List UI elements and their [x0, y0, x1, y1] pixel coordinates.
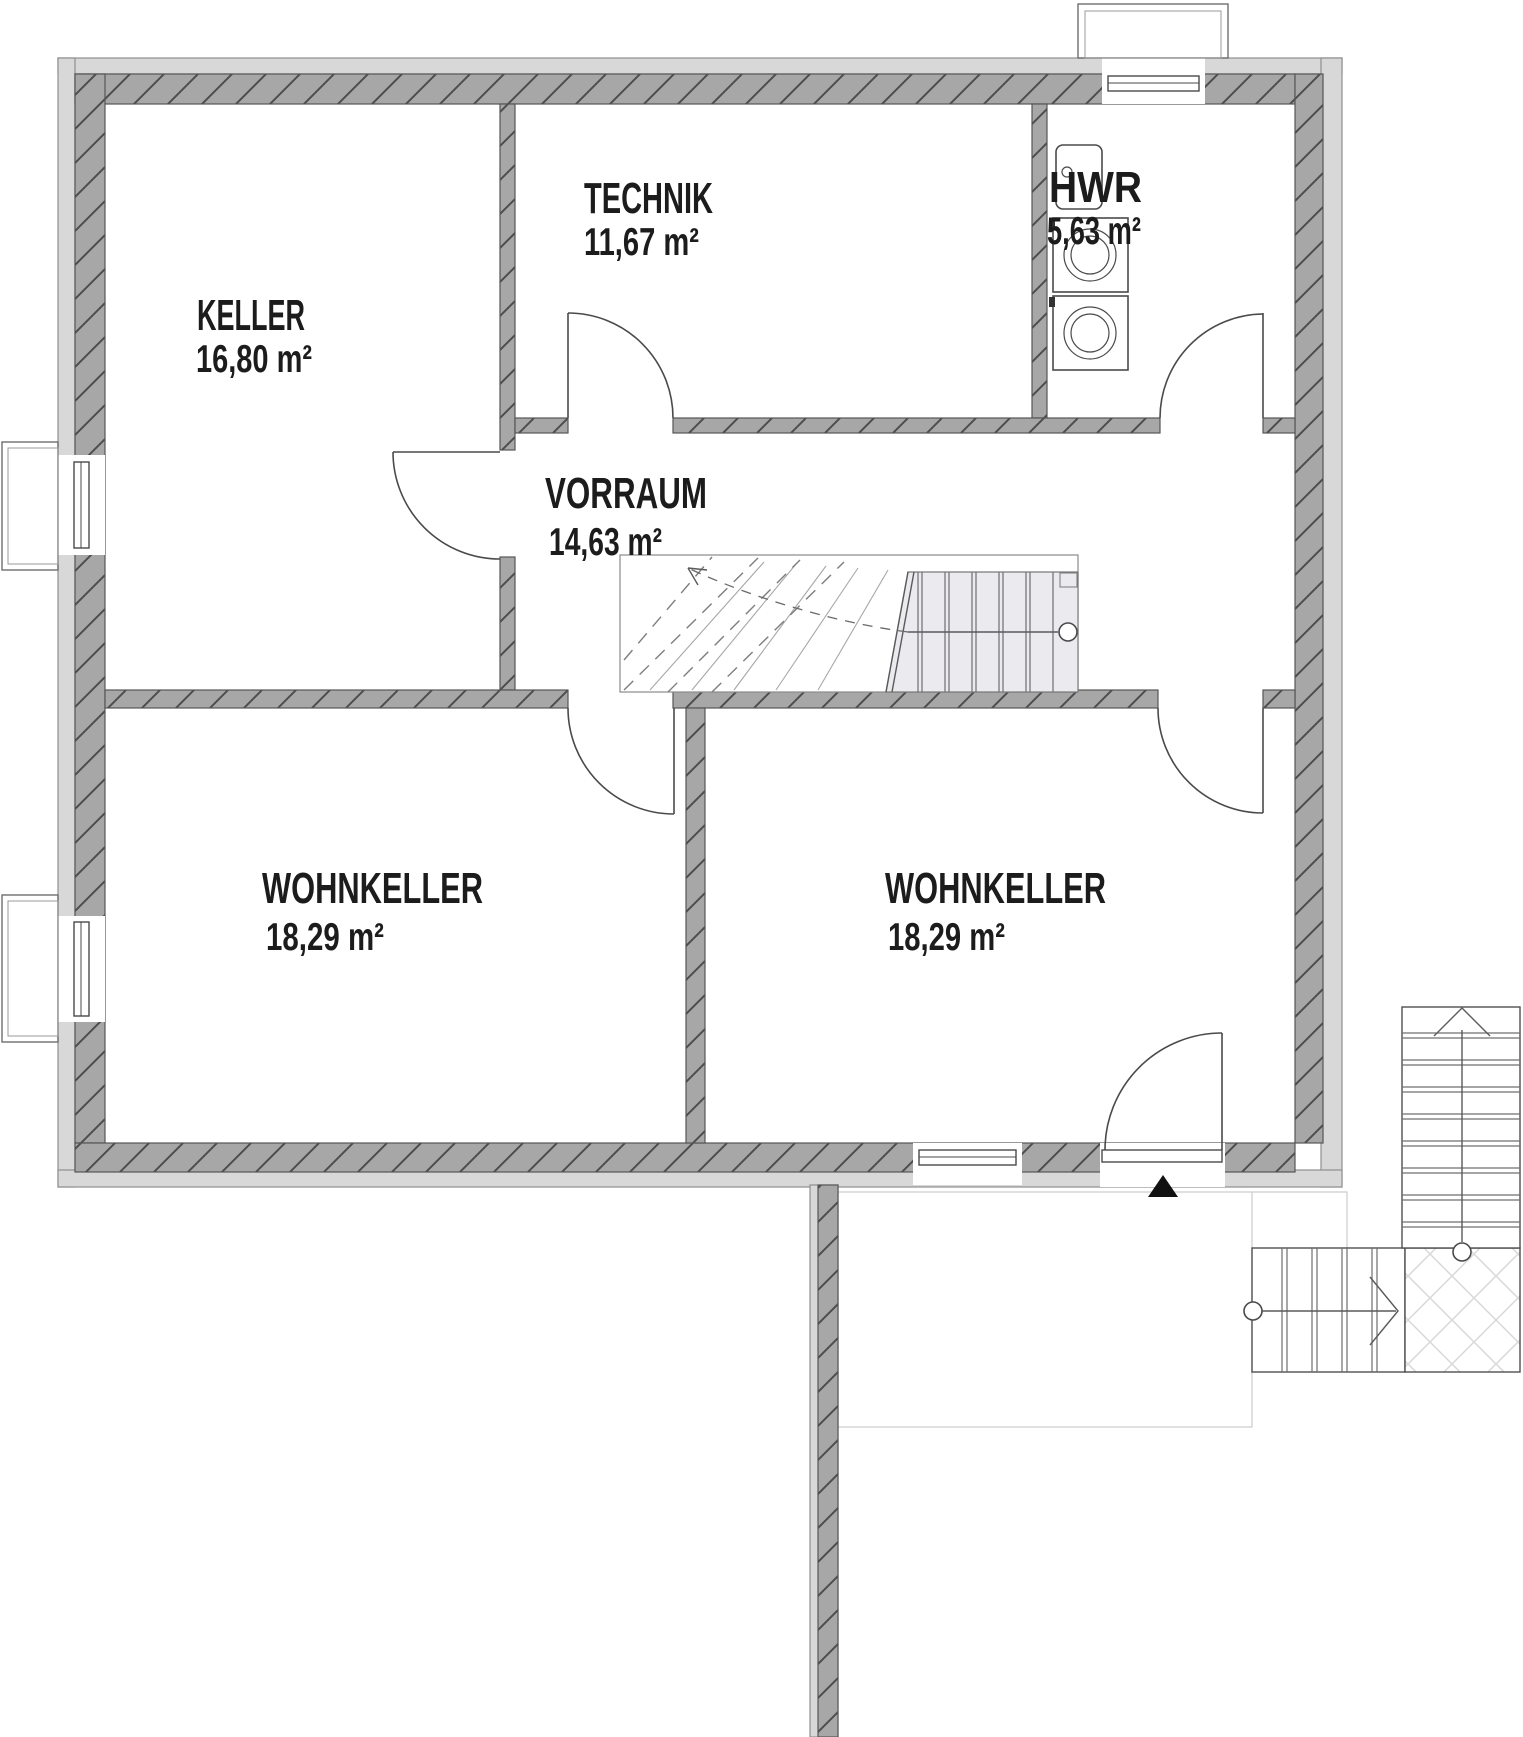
window-bottom — [913, 1143, 1022, 1185]
garden-wall — [810, 1185, 838, 1737]
door-hwr — [1160, 313, 1263, 418]
window-left-lower — [58, 916, 105, 1022]
door-wohnkeller-left — [568, 708, 674, 814]
wall-middle-3 — [1263, 690, 1295, 708]
wall-vorraum-top-2 — [673, 418, 1160, 433]
door-keller — [393, 452, 500, 559]
room-area-keller: 16,80 m² — [196, 338, 312, 381]
room-label-wohnkeller-right: WOHNKELLER — [885, 864, 1106, 913]
room-area-vorraum: 14,63 m² — [549, 521, 662, 564]
entrance-door — [1100, 1033, 1225, 1187]
light-well-top — [1078, 4, 1228, 58]
exterior-stair-landing — [1405, 1248, 1520, 1372]
wall-vorraum-top-3 — [1263, 418, 1295, 433]
room-label-keller: KELLER — [197, 291, 305, 340]
light-well-left-lower — [2, 895, 58, 1042]
room-label-technik: TECHNIK — [584, 174, 713, 223]
room-area-wohnkeller-left: 18,29 m² — [266, 916, 384, 959]
wall-technik-hwr — [1032, 104, 1047, 418]
exterior-stair-upper-flight — [1402, 1007, 1520, 1248]
room-area-wohnkeller-right: 18,29 m² — [888, 916, 1005, 959]
wall-middle-1 — [105, 690, 568, 708]
wall-wohnkeller-divider — [686, 708, 705, 1143]
wall-keller-east-upper — [500, 104, 515, 450]
light-well-left-upper — [2, 442, 58, 570]
room-label-wohnkeller-left: WOHNKELLER — [262, 864, 483, 913]
door-technik — [568, 313, 673, 418]
floor-plan: KELLER 16,80 m² TECHNIK 11,67 m² HWR 5,6… — [0, 0, 1523, 1737]
wall-vorraum-top-1 — [515, 418, 568, 433]
window-left-upper — [58, 455, 105, 555]
stair-newel-circle — [1059, 623, 1077, 641]
floor-plan-drawing: KELLER 16,80 m² TECHNIK 11,67 m² HWR 5,6… — [0, 0, 1523, 1737]
wall-keller-east-lower — [500, 557, 515, 690]
room-label-hwr: HWR — [1049, 163, 1142, 212]
window-top-hwr — [1102, 58, 1205, 104]
room-area-hwr: 5,63 m² — [1047, 210, 1141, 253]
exterior-stair-lower-flight — [1252, 1248, 1405, 1372]
room-area-technik: 11,67 m² — [584, 221, 699, 264]
staircase-interior — [620, 555, 1078, 692]
wall-middle-2 — [673, 690, 1158, 708]
washing-machine-2 — [1049, 296, 1128, 370]
exterior-stairs — [1244, 1007, 1520, 1372]
door-wohnkeller-right — [1158, 708, 1263, 813]
room-label-vorraum: VORRAUM — [545, 469, 707, 518]
